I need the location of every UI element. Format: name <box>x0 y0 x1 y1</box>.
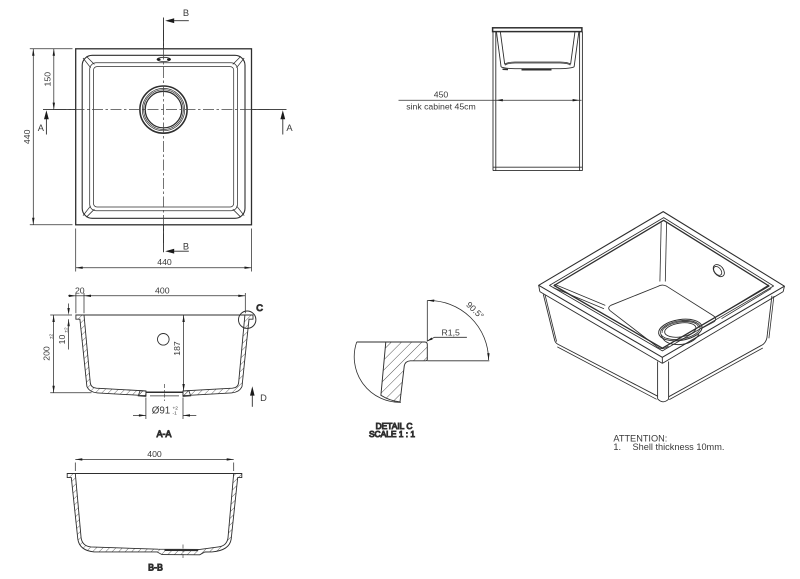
svg-text:400: 400 <box>147 449 162 459</box>
svg-text:150: 150 <box>42 72 52 87</box>
svg-text:187: 187 <box>172 341 182 356</box>
svg-text:20: 20 <box>75 286 85 296</box>
svg-text:Shell thickness 10mm.: Shell thickness 10mm. <box>633 442 725 452</box>
svg-text:B: B <box>183 8 189 18</box>
svg-text:Ø91: Ø91 <box>152 406 171 417</box>
svg-text:10: 10 <box>57 335 67 345</box>
svg-text:450: 450 <box>434 89 449 99</box>
svg-text:A: A <box>286 123 293 133</box>
svg-text:±2: ±2 <box>64 327 70 333</box>
svg-text:C: C <box>256 303 263 313</box>
svg-text:200: 200 <box>41 346 51 361</box>
svg-text:-1: -1 <box>173 411 178 417</box>
svg-text:B-B: B-B <box>148 562 163 572</box>
svg-text:D: D <box>260 393 267 403</box>
svg-text:SCALE 1 : 1: SCALE 1 : 1 <box>369 429 415 439</box>
svg-text:440: 440 <box>157 257 172 267</box>
svg-text:R1,5: R1,5 <box>442 327 461 337</box>
svg-text:A-A: A-A <box>157 429 172 439</box>
svg-text:sink cabinet 45cm: sink cabinet 45cm <box>406 102 476 112</box>
svg-text:400: 400 <box>155 286 170 296</box>
svg-text:B: B <box>183 242 189 252</box>
svg-text:90.5°: 90.5° <box>464 300 486 321</box>
svg-text:440: 440 <box>22 129 32 144</box>
svg-text:1.: 1. <box>613 442 621 452</box>
svg-text:±2: ±2 <box>48 334 54 340</box>
svg-text:A: A <box>38 123 45 133</box>
